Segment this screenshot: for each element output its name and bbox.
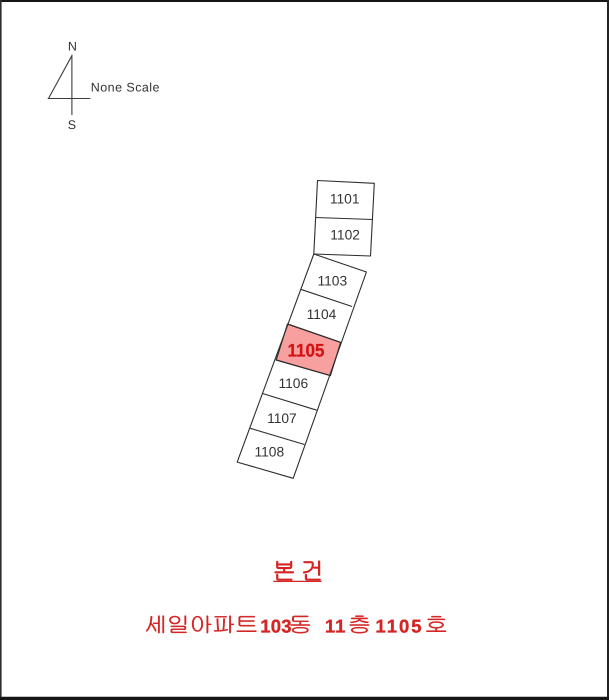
- svg-text:None Scale: None Scale: [91, 81, 160, 95]
- svg-text:11: 11: [325, 615, 347, 636]
- svg-text:S: S: [68, 118, 76, 132]
- svg-text:1102: 1102: [330, 228, 360, 243]
- svg-text:1106: 1106: [278, 376, 308, 391]
- svg-text:1108: 1108: [254, 445, 284, 460]
- svg-text:1101: 1101: [330, 192, 360, 207]
- svg-text:1103: 1103: [317, 273, 347, 288]
- svg-text:N: N: [68, 40, 77, 54]
- svg-text:103: 103: [260, 615, 291, 636]
- svg-text:1104: 1104: [307, 307, 337, 322]
- svg-text:1105: 1105: [375, 615, 423, 636]
- svg-text:1107: 1107: [267, 411, 297, 426]
- svg-text:1105: 1105: [287, 340, 324, 360]
